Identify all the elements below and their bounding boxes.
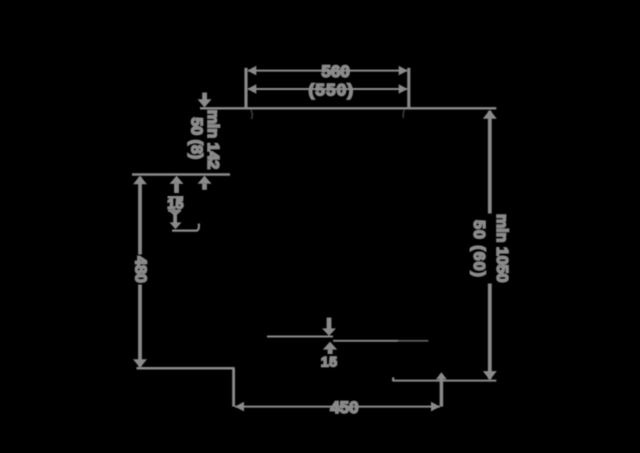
svg-text:50 (60): 50 (60) (470, 220, 487, 278)
svg-text:50 (8): 50 (8) (188, 117, 205, 159)
svg-text:(550): (550) (309, 80, 355, 99)
svg-text:15: 15 (167, 196, 184, 212)
svg-text:15: 15 (321, 353, 338, 369)
svg-text:450: 450 (330, 398, 358, 417)
svg-text:560: 560 (321, 62, 349, 81)
svg-text:min 142: min 142 (204, 110, 221, 170)
svg-text:min 1050: min 1050 (493, 214, 510, 283)
svg-text:480: 480 (131, 256, 148, 283)
